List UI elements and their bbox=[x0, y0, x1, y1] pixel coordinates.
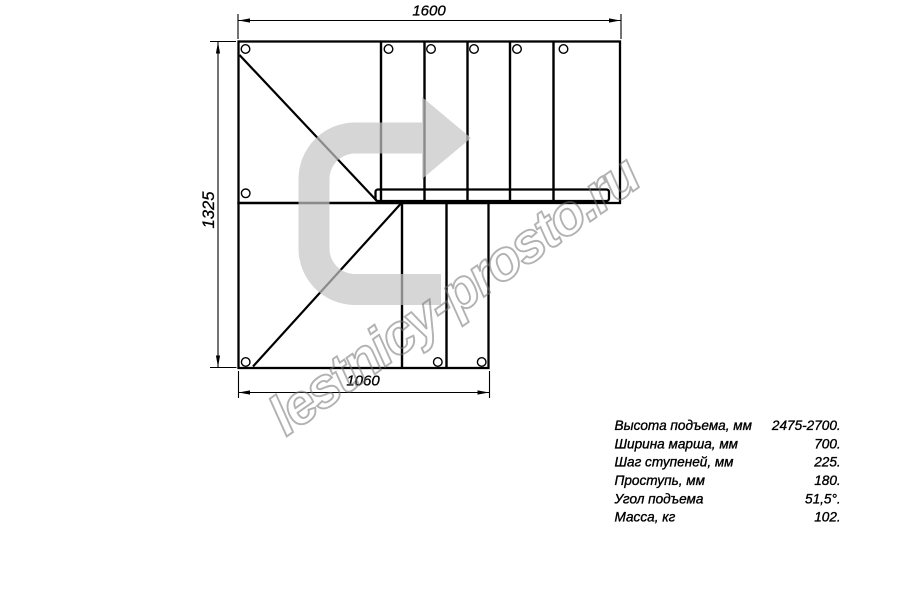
svg-text:Масса, кг: Масса, кг bbox=[615, 510, 676, 525]
svg-text:225.: 225. bbox=[813, 455, 840, 470]
svg-text:2475-2700.: 2475-2700. bbox=[771, 418, 841, 433]
svg-text:180.: 180. bbox=[814, 473, 840, 488]
svg-text:Высота подъема, мм: Высота подъема, мм bbox=[615, 418, 753, 433]
svg-text:Шаг ступеней, мм: Шаг ступеней, мм bbox=[615, 455, 735, 470]
svg-text:Угол подъема: Угол подъема bbox=[614, 491, 704, 506]
svg-text:51,5°.: 51,5°. bbox=[805, 491, 841, 506]
svg-text:1325: 1325 bbox=[199, 191, 218, 229]
svg-text:700.: 700. bbox=[814, 436, 840, 451]
svg-text:Проступь, мм: Проступь, мм bbox=[615, 473, 706, 488]
svg-text:102.: 102. bbox=[814, 510, 840, 525]
svg-text:Ширина марша, мм: Ширина марша, мм bbox=[615, 436, 739, 451]
svg-text:1600: 1600 bbox=[412, 3, 446, 20]
